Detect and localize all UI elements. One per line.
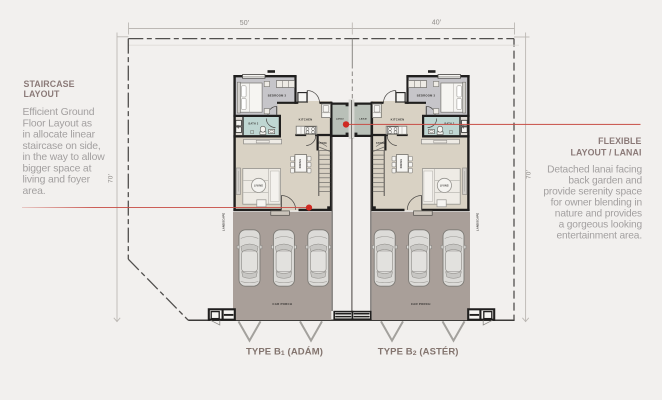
svg-text:provide serenity space: provide serenity space (543, 187, 642, 198)
svg-text:DINING: DINING (300, 159, 302, 169)
svg-text:STORE: STORE (376, 143, 385, 145)
svg-text:Efficient Ground: Efficient Ground (23, 107, 95, 118)
svg-text:a gorgeous looking: a gorgeous looking (559, 220, 643, 231)
svg-text:in the way to allow: in the way to allow (23, 152, 106, 163)
svg-text:KITCHEN: KITCHEN (299, 117, 313, 121)
svg-text:back garden and: back garden and (568, 176, 642, 187)
svg-text:70′: 70′ (107, 173, 114, 183)
svg-text:TYPE B2 (ASTÉR): TYPE B2 (ASTÉR) (378, 346, 459, 357)
svg-text:Floor Layout as: Floor Layout as (23, 118, 92, 129)
svg-text:KITCHEN: KITCHEN (391, 117, 405, 121)
svg-text:bigger space at: bigger space at (23, 163, 92, 174)
svg-text:nature and provides: nature and provides (555, 209, 642, 220)
svg-text:BEDROOM 3: BEDROOM 3 (268, 93, 287, 97)
svg-text:CAR PORCH: CAR PORCH (411, 302, 431, 306)
svg-text:TYPE B1 (ADÁM): TYPE B1 (ADÁM) (246, 346, 323, 357)
svg-text:LANDSCAPE: LANDSCAPE (222, 213, 226, 231)
svg-text:FLEXIBLE: FLEXIBLE (598, 136, 641, 146)
svg-text:CAR PORCH: CAR PORCH (272, 302, 292, 306)
svg-text:A/C: A/C (237, 124, 240, 128)
svg-text:LAYOUT: LAYOUT (24, 89, 60, 99)
svg-text:BEDROOM 3: BEDROOM 3 (417, 93, 436, 97)
svg-text:50′: 50′ (240, 20, 250, 27)
svg-text:entertainment area.: entertainment area. (557, 231, 643, 242)
svg-text:staircase on side,: staircase on side, (23, 141, 101, 152)
svg-text:STORE: STORE (318, 143, 327, 145)
svg-text:for owner blending in: for owner blending in (551, 198, 642, 209)
svg-text:LANDSCAPE: LANDSCAPE (475, 213, 479, 231)
svg-text:LIVING: LIVING (254, 185, 263, 187)
svg-text:DINING: DINING (401, 159, 403, 169)
svg-text:40′: 40′ (432, 20, 442, 27)
svg-text:living and foyer: living and foyer (23, 175, 91, 186)
svg-text:LANAI: LANAI (359, 118, 367, 121)
svg-text:Detached lanai facing: Detached lanai facing (547, 165, 642, 176)
svg-text:STAIRCASE: STAIRCASE (24, 79, 75, 89)
svg-text:BATH 2: BATH 2 (249, 122, 259, 125)
svg-text:in allocate linear: in allocate linear (23, 130, 96, 141)
svg-text:LIVING: LIVING (440, 185, 449, 187)
svg-text:LAYOUT / LANAI: LAYOUT / LANAI (571, 148, 642, 158)
svg-text:LANAI: LANAI (336, 118, 344, 121)
svg-text:70′: 70′ (526, 169, 533, 179)
svg-text:area.: area. (23, 186, 46, 197)
